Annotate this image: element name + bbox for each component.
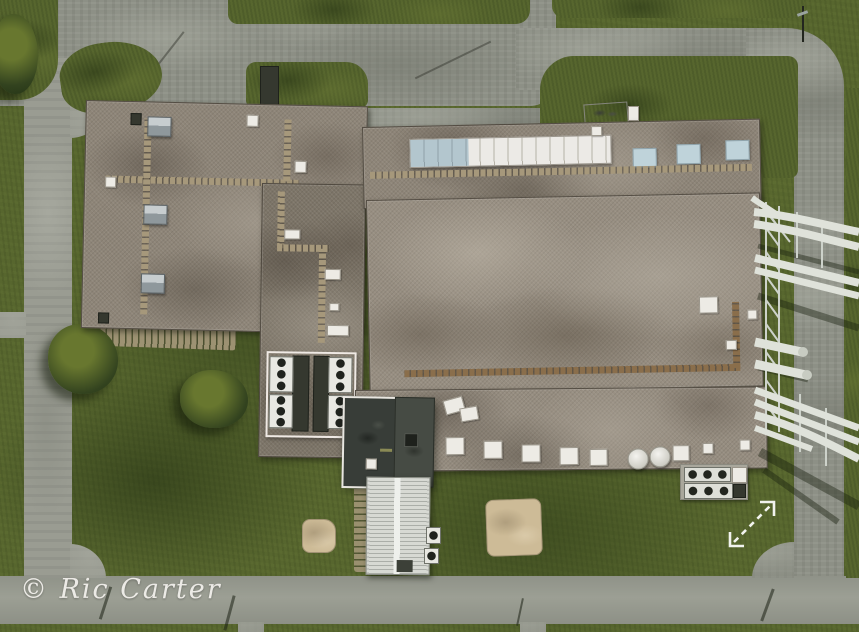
aerial-photo-canvas: © Ric Carter [0, 0, 859, 632]
expand-arrow-icon[interactable] [716, 486, 792, 562]
watermark-credit: © Ric Carter [20, 574, 222, 605]
